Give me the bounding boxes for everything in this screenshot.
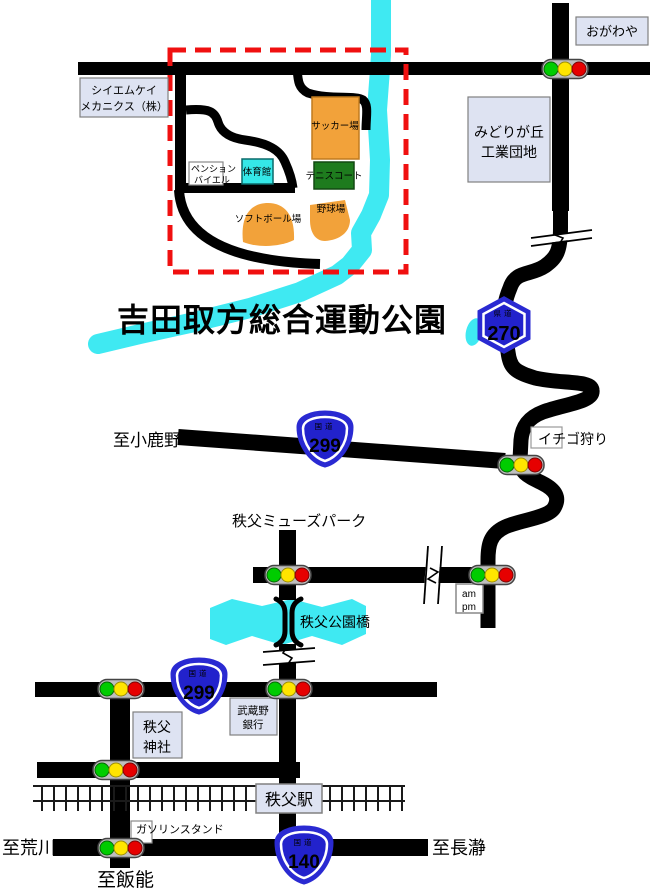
gas-station-label: ガソリンスタンド bbox=[136, 823, 224, 836]
pension-label-2: バイエル bbox=[194, 175, 230, 185]
shrine-label-2: 神社 bbox=[143, 739, 171, 755]
station-box: 秩父駅 bbox=[256, 784, 322, 813]
park-title: 吉田取方総合運動公園 bbox=[117, 302, 447, 338]
muse-park-label: 秩父ミューズパーク bbox=[232, 513, 366, 530]
cmk-company-box: シイエムケイ メカニクス（株） bbox=[80, 78, 168, 117]
traffic-light-ampm bbox=[469, 566, 515, 585]
bank-box: 武蔵野 銀行 bbox=[230, 698, 277, 735]
route-shield-299-upper-type: 国道 bbox=[315, 421, 336, 431]
softball-field-label: ソフトボール場 bbox=[235, 213, 302, 225]
traffic-light-shrine bbox=[93, 761, 139, 780]
route-shield-299-lower: 国道 299 bbox=[173, 660, 225, 712]
road-270-winding bbox=[488, 205, 592, 628]
midorigaoka-label-2: 工業団地 bbox=[481, 144, 537, 160]
route-shield-140-type: 国道 bbox=[294, 837, 315, 847]
shrine-label-1: 秩父 bbox=[143, 719, 171, 735]
route-shield-299-upper: 国道 299 bbox=[299, 413, 351, 465]
road-muse-lower bbox=[279, 644, 296, 850]
strawberry-picking-label: イチゴ狩り bbox=[538, 431, 608, 447]
bank-label-2: 銀行 bbox=[243, 718, 264, 731]
bank-label-1: 武蔵野 bbox=[237, 704, 269, 717]
park-bridge-label: 秩父公園橋 bbox=[300, 614, 370, 630]
route-shield-270-type: 県道 bbox=[494, 308, 515, 318]
station-label: 秩父駅 bbox=[265, 791, 313, 809]
route-shield-270: 県道 270 bbox=[480, 299, 528, 351]
road-right-vertical bbox=[552, 3, 569, 211]
traffic-light-ogawaya bbox=[542, 60, 588, 79]
access-map: サッカー場 テニスコート 体育館 ペンション バイエル ソフトボール場 野球場 … bbox=[0, 0, 650, 890]
map-canvas: サッカー場 テニスコート 体育館 ペンション バイエル ソフトボール場 野球場 … bbox=[0, 0, 650, 890]
route-shield-299-upper-number: 299 bbox=[309, 436, 341, 457]
soccer-field-label: サッカー場 bbox=[311, 120, 359, 132]
ogawaya-label: おがわや bbox=[586, 24, 638, 39]
road-shrine-horizontal bbox=[37, 762, 300, 778]
baseball-field-label: 野球場 bbox=[317, 203, 346, 215]
route-shield-299-lower-type: 国道 bbox=[189, 668, 210, 678]
road-break-middle bbox=[423, 546, 442, 604]
gymnasium-label: 体育館 bbox=[243, 166, 272, 178]
pension-label-1: ペンション bbox=[191, 164, 236, 174]
ampm-label-2: pm bbox=[462, 602, 476, 613]
road-299-lower bbox=[35, 682, 437, 697]
ampm-label-1: am bbox=[462, 589, 476, 600]
railway-track bbox=[33, 785, 405, 811]
ampm-store-box: am pm bbox=[456, 584, 483, 613]
midorigaoka-label-1: みどりが丘 bbox=[474, 124, 544, 140]
traffic-light-299-270 bbox=[498, 456, 544, 475]
strawberry-picking-box: イチゴ狩り bbox=[531, 427, 608, 448]
tennis-court-label: テニスコート bbox=[305, 171, 362, 182]
park-road-vertical bbox=[175, 68, 186, 190]
route-shield-140-number: 140 bbox=[288, 852, 320, 873]
midorigaoka-box: みどりが丘 工業団地 bbox=[468, 97, 550, 182]
dest-arakawa-label: 至荒川 bbox=[2, 838, 56, 858]
traffic-light-299-east bbox=[266, 680, 312, 699]
route-shield-270-number: 270 bbox=[487, 323, 520, 345]
traffic-light-140 bbox=[98, 839, 144, 858]
dest-nagatoro-label: 至長瀞 bbox=[432, 838, 486, 858]
cmk-company-label-1: シイエムケイ bbox=[91, 84, 157, 97]
ogawaya-box: おがわや bbox=[576, 17, 648, 45]
shrine-box: 秩父 神社 bbox=[133, 712, 182, 758]
dest-ogano-label: 至小鹿野 bbox=[113, 431, 181, 450]
dest-hanno-label: 至飯能 bbox=[97, 869, 154, 890]
traffic-light-299-west bbox=[98, 680, 144, 699]
route-shield-140: 国道 140 bbox=[277, 828, 331, 882]
traffic-light-muse bbox=[265, 566, 311, 585]
cmk-company-label-2: メカニクス（株） bbox=[80, 99, 168, 113]
route-shield-299-lower-number: 299 bbox=[183, 683, 215, 704]
